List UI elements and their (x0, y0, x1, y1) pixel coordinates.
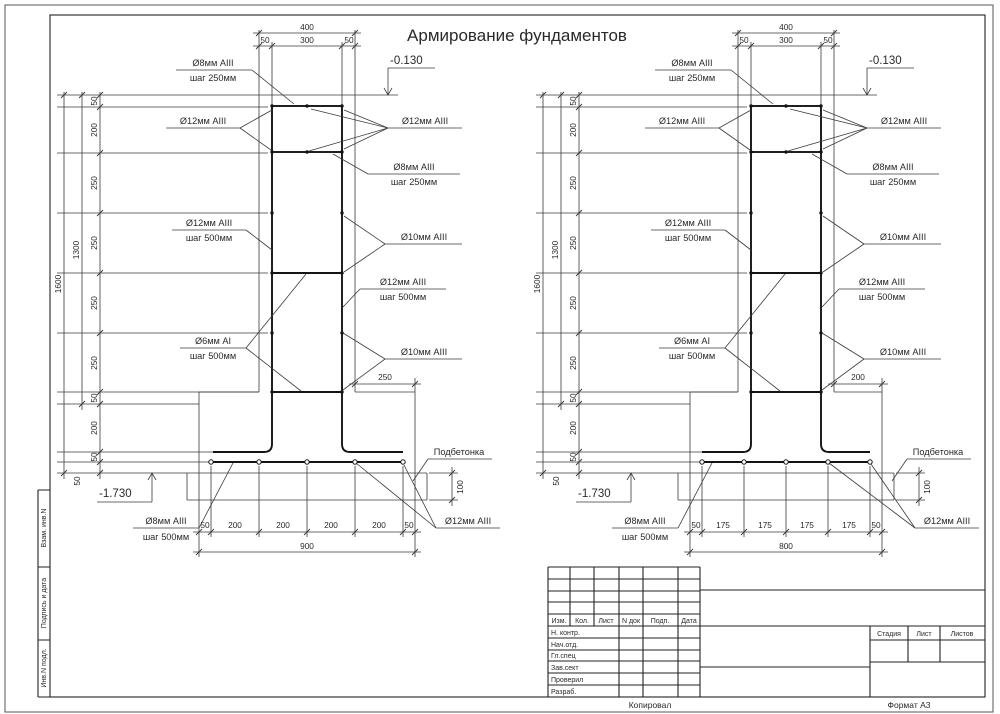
dim-bottom-total-right: 800 (779, 541, 793, 551)
dim-bottom-r1: 175 (716, 520, 730, 530)
dim-bottom-r3: 175 (800, 520, 814, 530)
stamp-podpis-data: Подпись и дата (41, 578, 48, 628)
format-label: Формат А3 (888, 700, 931, 710)
tb-header-kol: Кол. (575, 618, 589, 625)
left-foundation-section (53, 22, 492, 542)
left-footing: 250 100 50 200 200 200 200 50 900 Ø12мм … (57, 372, 500, 557)
tb-row-razrab: Разраб. (551, 688, 576, 696)
stamp-vzam-inv: Взам. инв.N (41, 509, 48, 548)
side-stamps: Взам. инв.N Подпись и дата Инв.N подл. (38, 490, 50, 697)
tb-header-podp: Подп. (651, 618, 670, 625)
copied-label: Копировал (629, 700, 672, 710)
dim-blinding-left: 100 (455, 480, 465, 494)
dim-bottom-l0: 50 (200, 520, 210, 530)
bottom-margin: Копировал Формат А3 (629, 700, 931, 710)
dim-bottom-total-left: 900 (300, 541, 314, 551)
right-foundation-section (532, 22, 971, 542)
tb-row-nkontr: Н. контр. (551, 630, 580, 637)
dim-blinding-right: 100 (922, 480, 932, 494)
tb-header-izm: Изм. (552, 618, 567, 625)
drawing-sheet: 400 50 300 50 1600 (0, 0, 1000, 714)
tb-row-zavsekt: Зав.сект (551, 665, 579, 672)
tb-header-ndok: N док (622, 618, 641, 625)
dim-ledge-left: 250 (378, 372, 392, 382)
sheet-canvas: 400 50 300 50 1600 (0, 0, 1000, 714)
dim-bottom-l5: 50 (404, 520, 414, 530)
dim-ledge-right: 200 (851, 372, 865, 382)
tb-stage: Стадия (877, 631, 901, 638)
tb-row-glspec: Гл.спец (551, 653, 576, 660)
tb-header-list: Лист (598, 618, 614, 625)
label-d12-footing-right: Ø12мм AIII (924, 516, 970, 526)
title-block: Изм. Кол. Лист N док Подп. Дата Н. контр… (548, 567, 985, 697)
label-d12-footing-left: Ø12мм AIII (445, 516, 491, 526)
sheet-title: Армирование фундаментов (407, 26, 627, 45)
dim-bottom-r4: 175 (842, 520, 856, 530)
dim-bottom-r5: 50 (871, 520, 881, 530)
tb-header-data: Дата (681, 618, 697, 625)
outer-border (5, 5, 993, 712)
dim-bottom-r0: 50 (691, 520, 701, 530)
stamp-inv-podl: Инв.N подл. (41, 648, 48, 687)
tb-row-proveril: Проверил (551, 677, 583, 684)
dim-bottom-l3: 200 (324, 520, 338, 530)
dim-bottom-l1: 200 (228, 520, 242, 530)
tb-row-nachotd: Нач.отд. (551, 642, 578, 649)
dim-bottom-l2: 200 (276, 520, 290, 530)
dim-bottom-l4: 200 (372, 520, 386, 530)
tb-sheets: Листов (951, 631, 974, 638)
dim-bottom-r2: 175 (758, 520, 772, 530)
right-footing: 200 100 50 175 175 175 175 50 800 Ø12мм … (536, 372, 979, 557)
tb-sheet: Лист (916, 631, 932, 638)
